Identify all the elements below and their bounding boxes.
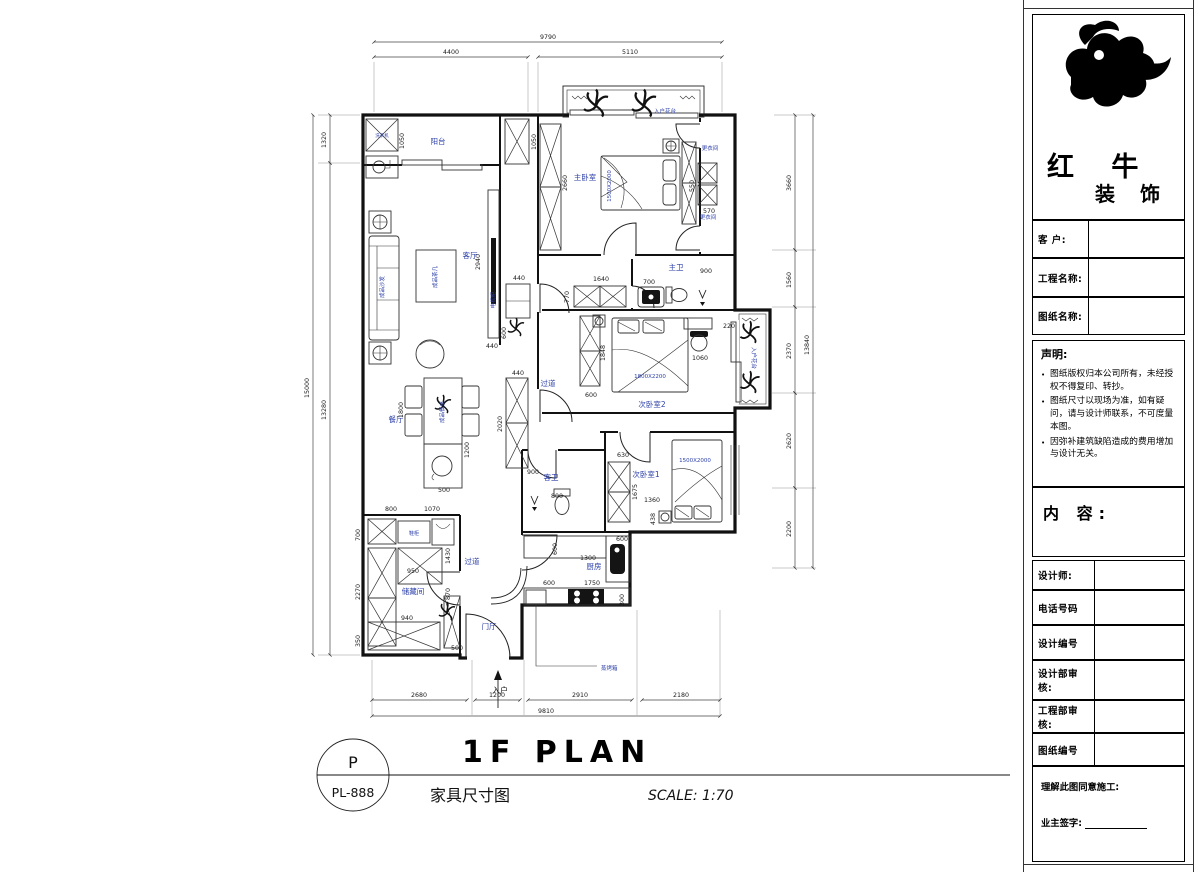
- entrance-arrow: [494, 670, 502, 680]
- furniture-label: 电视柜: [489, 291, 497, 308]
- statement-2: 图纸尺寸以现场为准，如有疑问，请与设计师联系，不可度量本图。: [1050, 395, 1179, 433]
- dim-right-seg2: 1560: [786, 272, 793, 288]
- room-label: 入户花台: [654, 107, 677, 115]
- dim-label: 1430: [445, 548, 452, 564]
- dim-label: 600: [552, 543, 559, 555]
- company-logo: [1033, 15, 1186, 143]
- furniture-label: 洗衣机: [375, 132, 389, 139]
- dim-label: 700: [355, 529, 362, 541]
- bedroom2-bed: [612, 318, 688, 392]
- master-bath-vanity: [638, 287, 664, 307]
- dim-right-seg3: 2370: [786, 343, 793, 359]
- dim-left-seg2: 13280: [321, 400, 328, 420]
- dim-bottom-seg1: 2680: [411, 692, 427, 699]
- dim-label: 1800: [398, 402, 405, 418]
- dining-set: [405, 378, 479, 488]
- room-labels: 阳台客厅餐厅储藏间门厅过道过道厨房客卫主卫主卧室次卧室2次卧室1更衣间更衣间入户…: [389, 107, 759, 631]
- side-table-top: [369, 211, 391, 233]
- curved-wall: [491, 566, 521, 598]
- furniture-label: 成品沙发: [378, 276, 386, 299]
- dim-label: 1200: [464, 442, 471, 458]
- room-label: 阳台: [431, 136, 446, 146]
- room-label: 客卫: [544, 472, 559, 482]
- storage-door: [427, 572, 460, 605]
- hallway-wardrobe: [506, 378, 528, 468]
- dim-label: 1070: [424, 506, 440, 513]
- dim-right-overall: 13840: [804, 335, 811, 355]
- entrance-label: 入户: [492, 685, 508, 695]
- armchair: [416, 340, 444, 368]
- dim-label: 600: [543, 580, 555, 587]
- scale-label: SCALE: 1:70: [648, 788, 734, 804]
- dim-label: 570: [703, 208, 715, 215]
- field-design-no: 设计编号: [1032, 625, 1185, 660]
- dim-label: 2020: [497, 416, 504, 432]
- stove: [568, 589, 604, 604]
- bedroom2-wardrobe: [580, 316, 600, 386]
- dim-label: 1750: [584, 580, 600, 587]
- frame-top: [1023, 8, 1194, 9]
- guest-shower: [531, 496, 538, 511]
- dim-right-seg5: 2200: [786, 521, 793, 537]
- field-eng-review: 工程部审核:: [1032, 700, 1185, 733]
- furniture-label: 成品餐桌: [438, 401, 446, 424]
- field-drawing-name: 图纸名称:: [1032, 297, 1185, 335]
- title-block: 红 牛 装 饰 客 户: 工程名称: 图纸名称: 声明: • 图纸版权归本公司所…: [1032, 14, 1187, 862]
- room-label: 主卫: [669, 262, 684, 272]
- bedroom1-nightstand: [659, 511, 671, 523]
- dim-label: 2660: [562, 175, 569, 191]
- dim-label: 800: [385, 506, 397, 513]
- dim-label: 2270: [355, 584, 362, 600]
- tv-cabinet: [488, 190, 499, 338]
- dim-label: 440: [486, 343, 498, 350]
- statement-3: 因弥补建筑缺陷造成的费用增加与设计无关。: [1050, 436, 1179, 462]
- bullet-icon: •: [1041, 368, 1050, 394]
- dim-label: 440: [512, 370, 524, 377]
- dim-label: 870: [445, 588, 452, 600]
- dim-label: 500: [451, 645, 463, 652]
- room-label: 门厅: [482, 622, 497, 631]
- entrance-marker: 入户: [492, 670, 508, 708]
- signature-label: 业主签字:: [1041, 815, 1082, 829]
- hallway-cabinet: [506, 284, 530, 318]
- dim-label: 550: [689, 180, 696, 192]
- floor-plan: 9790 4400 5110 15000 1320 13280 3660 156…: [0, 0, 1020, 872]
- room-label: 更衣间: [702, 144, 719, 152]
- dim-label: 300: [619, 594, 626, 606]
- furniture-label: 1500X2000: [607, 170, 613, 202]
- dim-top-seg1: 4400: [443, 49, 459, 56]
- dim-label: 600: [616, 536, 628, 543]
- dim-label: 1360: [644, 497, 660, 504]
- sheet-badge-letter: P: [348, 753, 358, 772]
- dim-label: 438: [650, 513, 657, 525]
- dim-label: 440: [513, 275, 525, 282]
- dim-label: 1640: [593, 276, 609, 283]
- room-label: 主卧室: [574, 172, 597, 182]
- dim-label: 500: [438, 487, 450, 494]
- room-label: 次卧室1: [632, 469, 659, 479]
- side-table-bottom: [369, 342, 391, 364]
- room-label: 过道: [541, 378, 556, 388]
- room-label: 入户花台: [750, 347, 758, 370]
- dim-label: 1050: [399, 133, 406, 149]
- room-label: 过道: [465, 556, 480, 566]
- drawing-sheet: 9790 4400 5110 15000 1320 13280 3660 156…: [0, 0, 1200, 872]
- statement-title: 声明:: [1041, 347, 1179, 363]
- dim-right-seg1: 3660: [786, 175, 793, 191]
- frame-divider: [1023, 0, 1024, 872]
- balcony-sink: [366, 156, 398, 178]
- master-nightstand: [663, 139, 679, 153]
- dim-label: 900: [700, 268, 712, 275]
- entrance-door: [466, 614, 510, 658]
- bath-corridor-cabinet: [574, 286, 626, 307]
- brand-name-bottom: 装 饰: [1095, 178, 1169, 207]
- dim-right-seg4: 2620: [786, 433, 793, 449]
- field-project-name: 工程名称:: [1032, 258, 1185, 297]
- content-box: 内 容:: [1032, 487, 1185, 557]
- statement-box: 声明: • 图纸版权归本公司所有，未经授权不得复印、转抄。 • 图纸尺寸以现场为…: [1032, 340, 1185, 487]
- inner-dimension-labels: 1050105029404406004404402020266016407707…: [355, 133, 735, 652]
- sheet-title-block: P PL-888 1F PLAN 家具尺寸图 SCALE: 1:70: [317, 735, 1010, 811]
- storage-cabinets: [368, 519, 460, 650]
- leader-line: [536, 604, 597, 666]
- signature-line: [1085, 818, 1147, 829]
- plan-subtitle: 家具尺寸图: [430, 786, 510, 805]
- field-customer: 客 户:: [1032, 220, 1185, 258]
- dim-label: 800: [551, 493, 563, 500]
- company-logo-box: 红 牛 装 饰: [1032, 14, 1185, 220]
- field-phone: 电话号码: [1032, 590, 1185, 625]
- dim-label: 940: [401, 615, 413, 622]
- dim-label: 770: [564, 291, 571, 303]
- field-drawing-value: [1089, 298, 1184, 334]
- dim-label: 1060: [692, 355, 708, 362]
- dim-label: 700: [643, 279, 655, 286]
- dim-bottom-overall: 9810: [538, 708, 554, 715]
- field-project-value: [1089, 259, 1184, 296]
- statement-1: 图纸版权归本公司所有，未经授权不得复印、转抄。: [1050, 368, 1179, 394]
- room-label: 次卧室2: [638, 399, 665, 409]
- furniture-label: 1500X2000: [679, 458, 711, 464]
- plan-title: 1F PLAN: [462, 735, 652, 770]
- sheet-badge-code: PL-888: [332, 785, 375, 800]
- dim-label: 350: [355, 635, 362, 647]
- field-design-review: 设计部审核:: [1032, 660, 1185, 700]
- content-label: 内 容:: [1043, 500, 1111, 524]
- dim-label: 950: [407, 568, 419, 575]
- master-shower: [699, 290, 706, 306]
- dim-bottom-seg4: 2180: [673, 692, 689, 699]
- dim-label: 1300: [580, 555, 596, 562]
- bedroom1-window: [731, 445, 739, 515]
- bullet-icon: •: [1041, 395, 1050, 433]
- bullet-icon: •: [1041, 436, 1050, 462]
- room-label: 储藏间: [402, 586, 425, 596]
- furniture-label: 1800X2200: [634, 374, 666, 380]
- dim-label: 1050: [531, 134, 538, 150]
- dim-label: 1675: [632, 484, 639, 500]
- dim-label: 1848: [600, 345, 607, 361]
- field-drawing-no: 图纸编号: [1032, 733, 1185, 766]
- dim-top-seg2: 5110: [622, 49, 638, 56]
- field-designer: 设计师:: [1032, 560, 1185, 590]
- dim-bottom-seg3: 2910: [572, 692, 588, 699]
- dim-label: 220: [723, 323, 735, 330]
- agreement-box: 理解此图同意施工: 业主签字:: [1032, 766, 1185, 862]
- master-wardrobe: [540, 124, 561, 250]
- master-toilet: [666, 287, 687, 303]
- frame-right: [1193, 0, 1194, 872]
- dim-label: 2940: [475, 254, 482, 270]
- dim-label: 630: [617, 452, 629, 459]
- dim-label: 600: [585, 392, 597, 399]
- furniture-label: 蒸烤箱: [601, 664, 618, 672]
- bedroom2-door: [540, 390, 572, 422]
- master-bedroom-door: [604, 223, 636, 255]
- hall-cabinet-top: [505, 119, 529, 164]
- dim-top-overall: 9790: [540, 34, 556, 41]
- dim-label: 600: [501, 327, 508, 339]
- bedroom1-bed: [672, 440, 722, 522]
- bedroom1-wardrobe: [608, 462, 630, 522]
- field-customer-value: [1089, 221, 1184, 257]
- frame-bottom: [1023, 864, 1194, 865]
- furniture-label: 鞋柜: [409, 530, 419, 537]
- dim-label: 900: [527, 469, 539, 476]
- agreement-label: 理解此图同意施工:: [1041, 779, 1178, 793]
- dim-left-overall: 15000: [304, 378, 311, 398]
- room-label: 厨房: [587, 561, 602, 571]
- furniture-label: 成品茶几: [431, 266, 439, 289]
- dim-left-seg1: 1320: [321, 132, 328, 148]
